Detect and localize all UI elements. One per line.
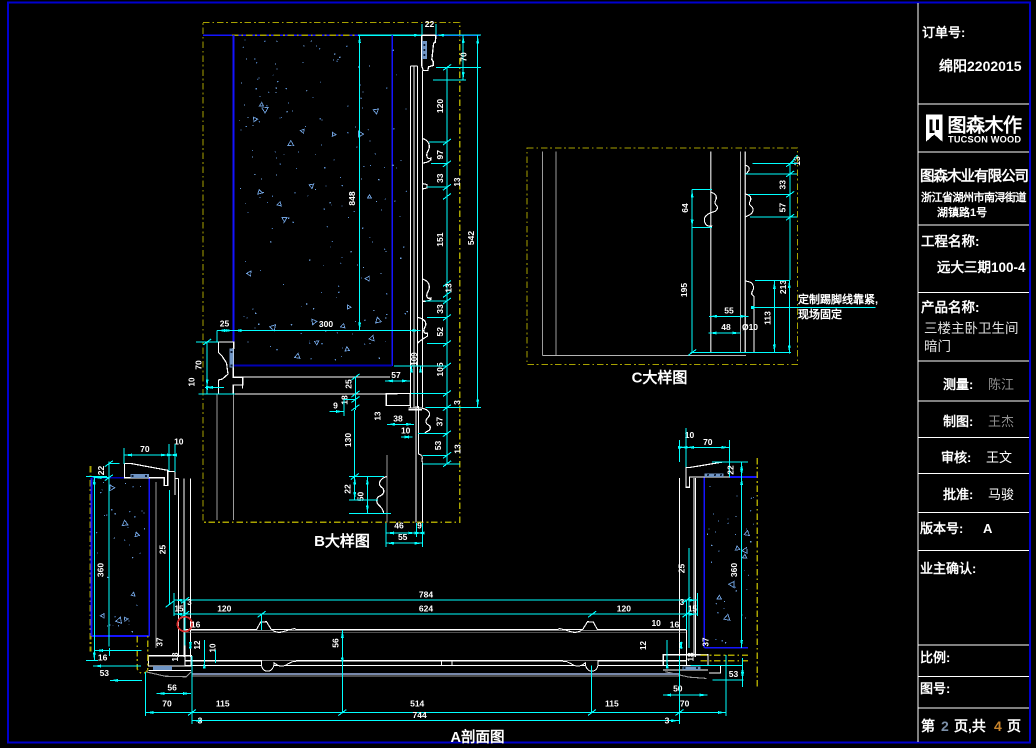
svg-text:4: 4 [994, 718, 1002, 734]
svg-text:16: 16 [191, 620, 201, 630]
svg-text:70: 70 [703, 437, 713, 447]
svg-text:25: 25 [344, 379, 354, 389]
svg-text:25: 25 [158, 545, 168, 555]
svg-text:53: 53 [100, 668, 110, 678]
svg-text:9: 9 [333, 401, 338, 411]
svg-text:13: 13 [444, 283, 454, 293]
svg-text:12: 12 [193, 640, 202, 649]
svg-text:10: 10 [209, 643, 218, 652]
svg-text:A剖面图: A剖面图 [451, 728, 505, 746]
svg-text:16: 16 [670, 620, 680, 630]
svg-text:55: 55 [724, 305, 734, 315]
svg-text:37: 37 [702, 637, 711, 646]
svg-text:10: 10 [188, 377, 197, 386]
svg-text:53: 53 [729, 669, 739, 679]
svg-text:109: 109 [410, 352, 419, 366]
svg-text:53: 53 [433, 441, 443, 451]
svg-text:页: 页 [1007, 718, 1021, 734]
svg-text:3: 3 [198, 716, 203, 726]
svg-text:97: 97 [435, 150, 445, 160]
svg-text:57: 57 [391, 370, 401, 380]
svg-text:70: 70 [140, 444, 150, 454]
svg-text:13: 13 [453, 177, 462, 186]
svg-text:图森木作: 图森木作 [948, 114, 1023, 137]
svg-text:C大样图: C大样图 [632, 369, 688, 387]
svg-text:542: 542 [466, 231, 476, 245]
svg-text:151: 151 [435, 232, 445, 246]
svg-text:图号:: 图号: [920, 681, 950, 696]
svg-text:远大三期100-4: 远大三期100-4 [937, 259, 1026, 275]
svg-text:浙江省湖州市南浔街道: 浙江省湖州市南浔街道 [921, 190, 1026, 204]
svg-text:湖镇路1号: 湖镇路1号 [937, 205, 987, 219]
svg-text:70: 70 [194, 360, 204, 370]
svg-text:制图:: 制图: [943, 414, 973, 429]
svg-text:产品名称:: 产品名称: [921, 299, 980, 315]
svg-text:624: 624 [419, 604, 433, 614]
svg-text:38: 38 [393, 414, 403, 424]
svg-text:120: 120 [617, 603, 631, 613]
svg-text:订单号:: 订单号: [922, 25, 965, 40]
svg-text:9: 9 [417, 521, 422, 531]
svg-text:37: 37 [156, 637, 165, 646]
svg-text:37: 37 [434, 417, 444, 427]
svg-text:22: 22 [96, 466, 106, 476]
svg-text:测量:: 测量: [943, 377, 973, 392]
svg-text:三楼主卧卫生间: 三楼主卧卫生间 [924, 321, 1019, 336]
svg-text:3: 3 [187, 598, 192, 607]
svg-text:13: 13 [792, 156, 802, 166]
svg-text:页,共: 页,共 [954, 718, 986, 734]
svg-text:B大样图: B大样图 [314, 532, 370, 550]
svg-text:22: 22 [726, 465, 736, 475]
svg-text:57: 57 [777, 203, 787, 213]
svg-text:56: 56 [331, 638, 341, 648]
svg-text:Ø10: Ø10 [742, 322, 758, 332]
svg-text:TUCSON WOOD: TUCSON WOOD [948, 135, 1021, 145]
svg-text:马骏: 马骏 [988, 487, 1014, 502]
svg-text:33: 33 [777, 180, 787, 190]
svg-text:业主确认:: 业主确认: [920, 561, 976, 576]
svg-text:王文: 王文 [986, 450, 1012, 465]
svg-text:744: 744 [413, 710, 427, 720]
svg-text:审核:: 审核: [941, 450, 971, 465]
svg-text:33: 33 [435, 173, 445, 183]
svg-text:13: 13 [452, 444, 462, 454]
svg-text:图森木业有限公司: 图森木业有限公司 [920, 167, 1028, 185]
svg-text:现场固定: 现场固定 [798, 307, 842, 321]
svg-text:工程名称:: 工程名称: [921, 233, 980, 249]
svg-text:定制踢脚线靠紧,: 定制踢脚线靠紧, [798, 292, 878, 306]
svg-text:22: 22 [425, 19, 435, 29]
svg-text:50: 50 [673, 684, 683, 694]
svg-text:56: 56 [167, 683, 177, 693]
svg-text:2: 2 [941, 718, 949, 734]
svg-text:第: 第 [921, 718, 935, 734]
svg-text:113: 113 [763, 311, 773, 325]
svg-text:25: 25 [677, 564, 687, 574]
svg-text:120: 120 [217, 603, 231, 613]
svg-text:46: 46 [394, 521, 404, 531]
svg-text:48: 48 [721, 322, 731, 332]
svg-text:10: 10 [174, 437, 184, 447]
svg-text:22: 22 [343, 484, 353, 494]
svg-text:360: 360 [96, 563, 106, 577]
svg-text:300: 300 [319, 319, 333, 329]
svg-text:批准:: 批准: [943, 487, 973, 502]
svg-text:A: A [983, 521, 993, 536]
svg-text:115: 115 [605, 699, 619, 709]
svg-text:25: 25 [220, 319, 230, 329]
svg-text:70: 70 [162, 699, 172, 709]
svg-text:120: 120 [435, 99, 445, 113]
svg-text:13: 13 [374, 411, 383, 420]
svg-text:52: 52 [435, 327, 445, 337]
svg-text:360: 360 [729, 563, 739, 577]
svg-text:陈江: 陈江 [988, 377, 1014, 392]
svg-text:暗门: 暗门 [924, 339, 951, 354]
svg-text:比例:: 比例: [920, 650, 950, 665]
svg-text:195: 195 [679, 283, 689, 297]
svg-text:33: 33 [435, 304, 445, 314]
svg-text:版本号:: 版本号: [920, 521, 963, 536]
svg-text:130: 130 [343, 433, 353, 447]
svg-text:16: 16 [98, 653, 108, 663]
svg-text:514: 514 [410, 699, 424, 709]
svg-text:784: 784 [419, 590, 433, 600]
svg-text:3: 3 [452, 400, 462, 405]
svg-text:55: 55 [398, 532, 408, 542]
svg-text:王杰: 王杰 [988, 414, 1014, 429]
svg-text:18: 18 [171, 652, 180, 661]
svg-text:绵阳2202015: 绵阳2202015 [939, 58, 1022, 74]
svg-text:10: 10 [651, 618, 661, 628]
svg-text:3: 3 [665, 716, 670, 726]
svg-text:70: 70 [459, 52, 469, 62]
svg-text:12: 12 [639, 641, 648, 650]
svg-text:10: 10 [401, 426, 411, 436]
svg-text:18: 18 [686, 652, 695, 661]
svg-text:848: 848 [347, 191, 357, 205]
svg-text:15: 15 [175, 604, 184, 613]
svg-text:70: 70 [680, 699, 690, 709]
svg-text:115: 115 [216, 699, 230, 709]
svg-text:213: 213 [778, 280, 788, 294]
svg-text:105: 105 [435, 362, 445, 376]
svg-text:64: 64 [680, 203, 690, 213]
